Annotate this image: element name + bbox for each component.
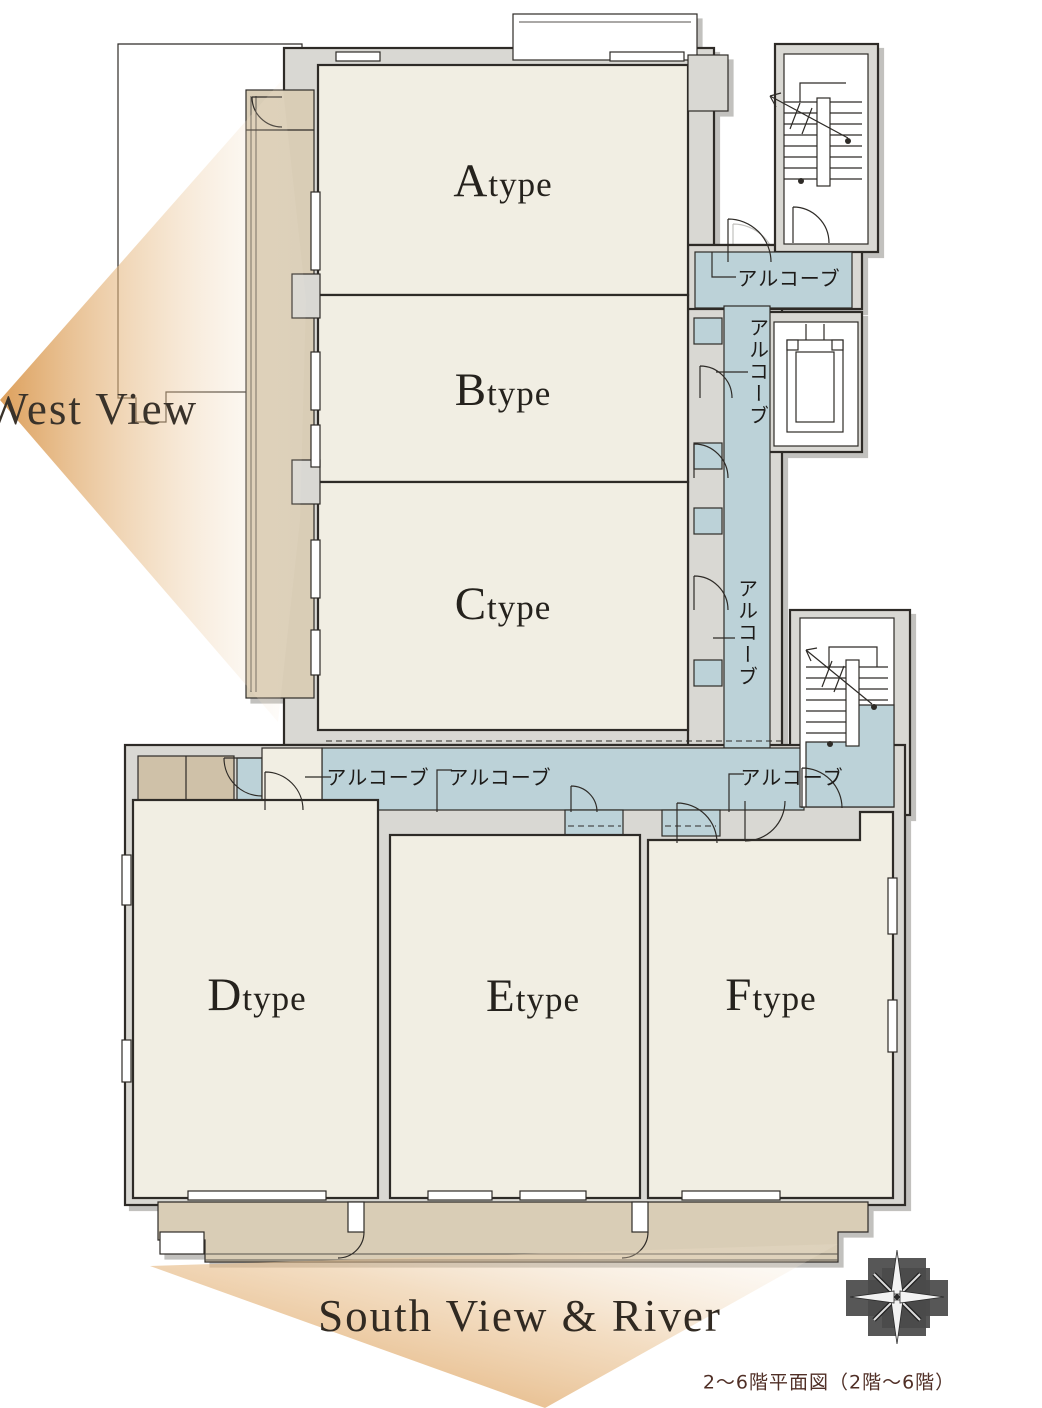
elevator — [774, 322, 858, 446]
room-label-suffix: type — [516, 980, 580, 1019]
floor-plan-page: Atype Btype Ctype Dtype Etype Ftype アルコー… — [0, 0, 1042, 1408]
room-label-suffix: type — [752, 979, 816, 1018]
south-view-label: South View & River — [318, 1290, 722, 1342]
room-label-suffix: type — [487, 374, 551, 413]
room-label-suffix: type — [488, 165, 552, 204]
room-label-ftype: Ftype — [725, 968, 816, 1022]
room-label-initial: A — [453, 155, 488, 207]
alcove-label-corridor-lower: アルコーブ — [733, 578, 762, 688]
alcove-label-south-east: アルコーブ — [740, 762, 843, 791]
compass-rose-icon — [846, 1250, 948, 1344]
room-label-initial: C — [455, 578, 487, 630]
alcove-label-south-mid: アルコーブ — [448, 762, 551, 791]
room-label-btype: Btype — [455, 363, 552, 417]
room-label-initial: D — [207, 969, 242, 1021]
room-label-atype: Atype — [453, 154, 552, 208]
room-label-suffix: type — [487, 588, 551, 627]
west-view-label: West View — [0, 383, 198, 435]
alcove-label-south-west: アルコーブ — [326, 762, 429, 791]
room-label-initial: F — [725, 969, 752, 1021]
alcove-label-corridor-upper: アルコーブ — [744, 317, 773, 427]
floor-caption: 2〜6階平面図（2階〜6階） — [703, 1368, 955, 1395]
room-label-dtype: Dtype — [207, 968, 306, 1022]
room-label-initial: B — [455, 364, 487, 416]
room-label-suffix: type — [242, 979, 306, 1018]
staircase-north — [770, 54, 868, 244]
alcove-label-north: アルコーブ — [737, 263, 840, 292]
room-label-initial: E — [486, 970, 516, 1022]
room-label-etype: Etype — [486, 969, 580, 1023]
room-label-ctype: Ctype — [455, 577, 552, 631]
floor-plan-drawing — [0, 0, 1042, 1408]
